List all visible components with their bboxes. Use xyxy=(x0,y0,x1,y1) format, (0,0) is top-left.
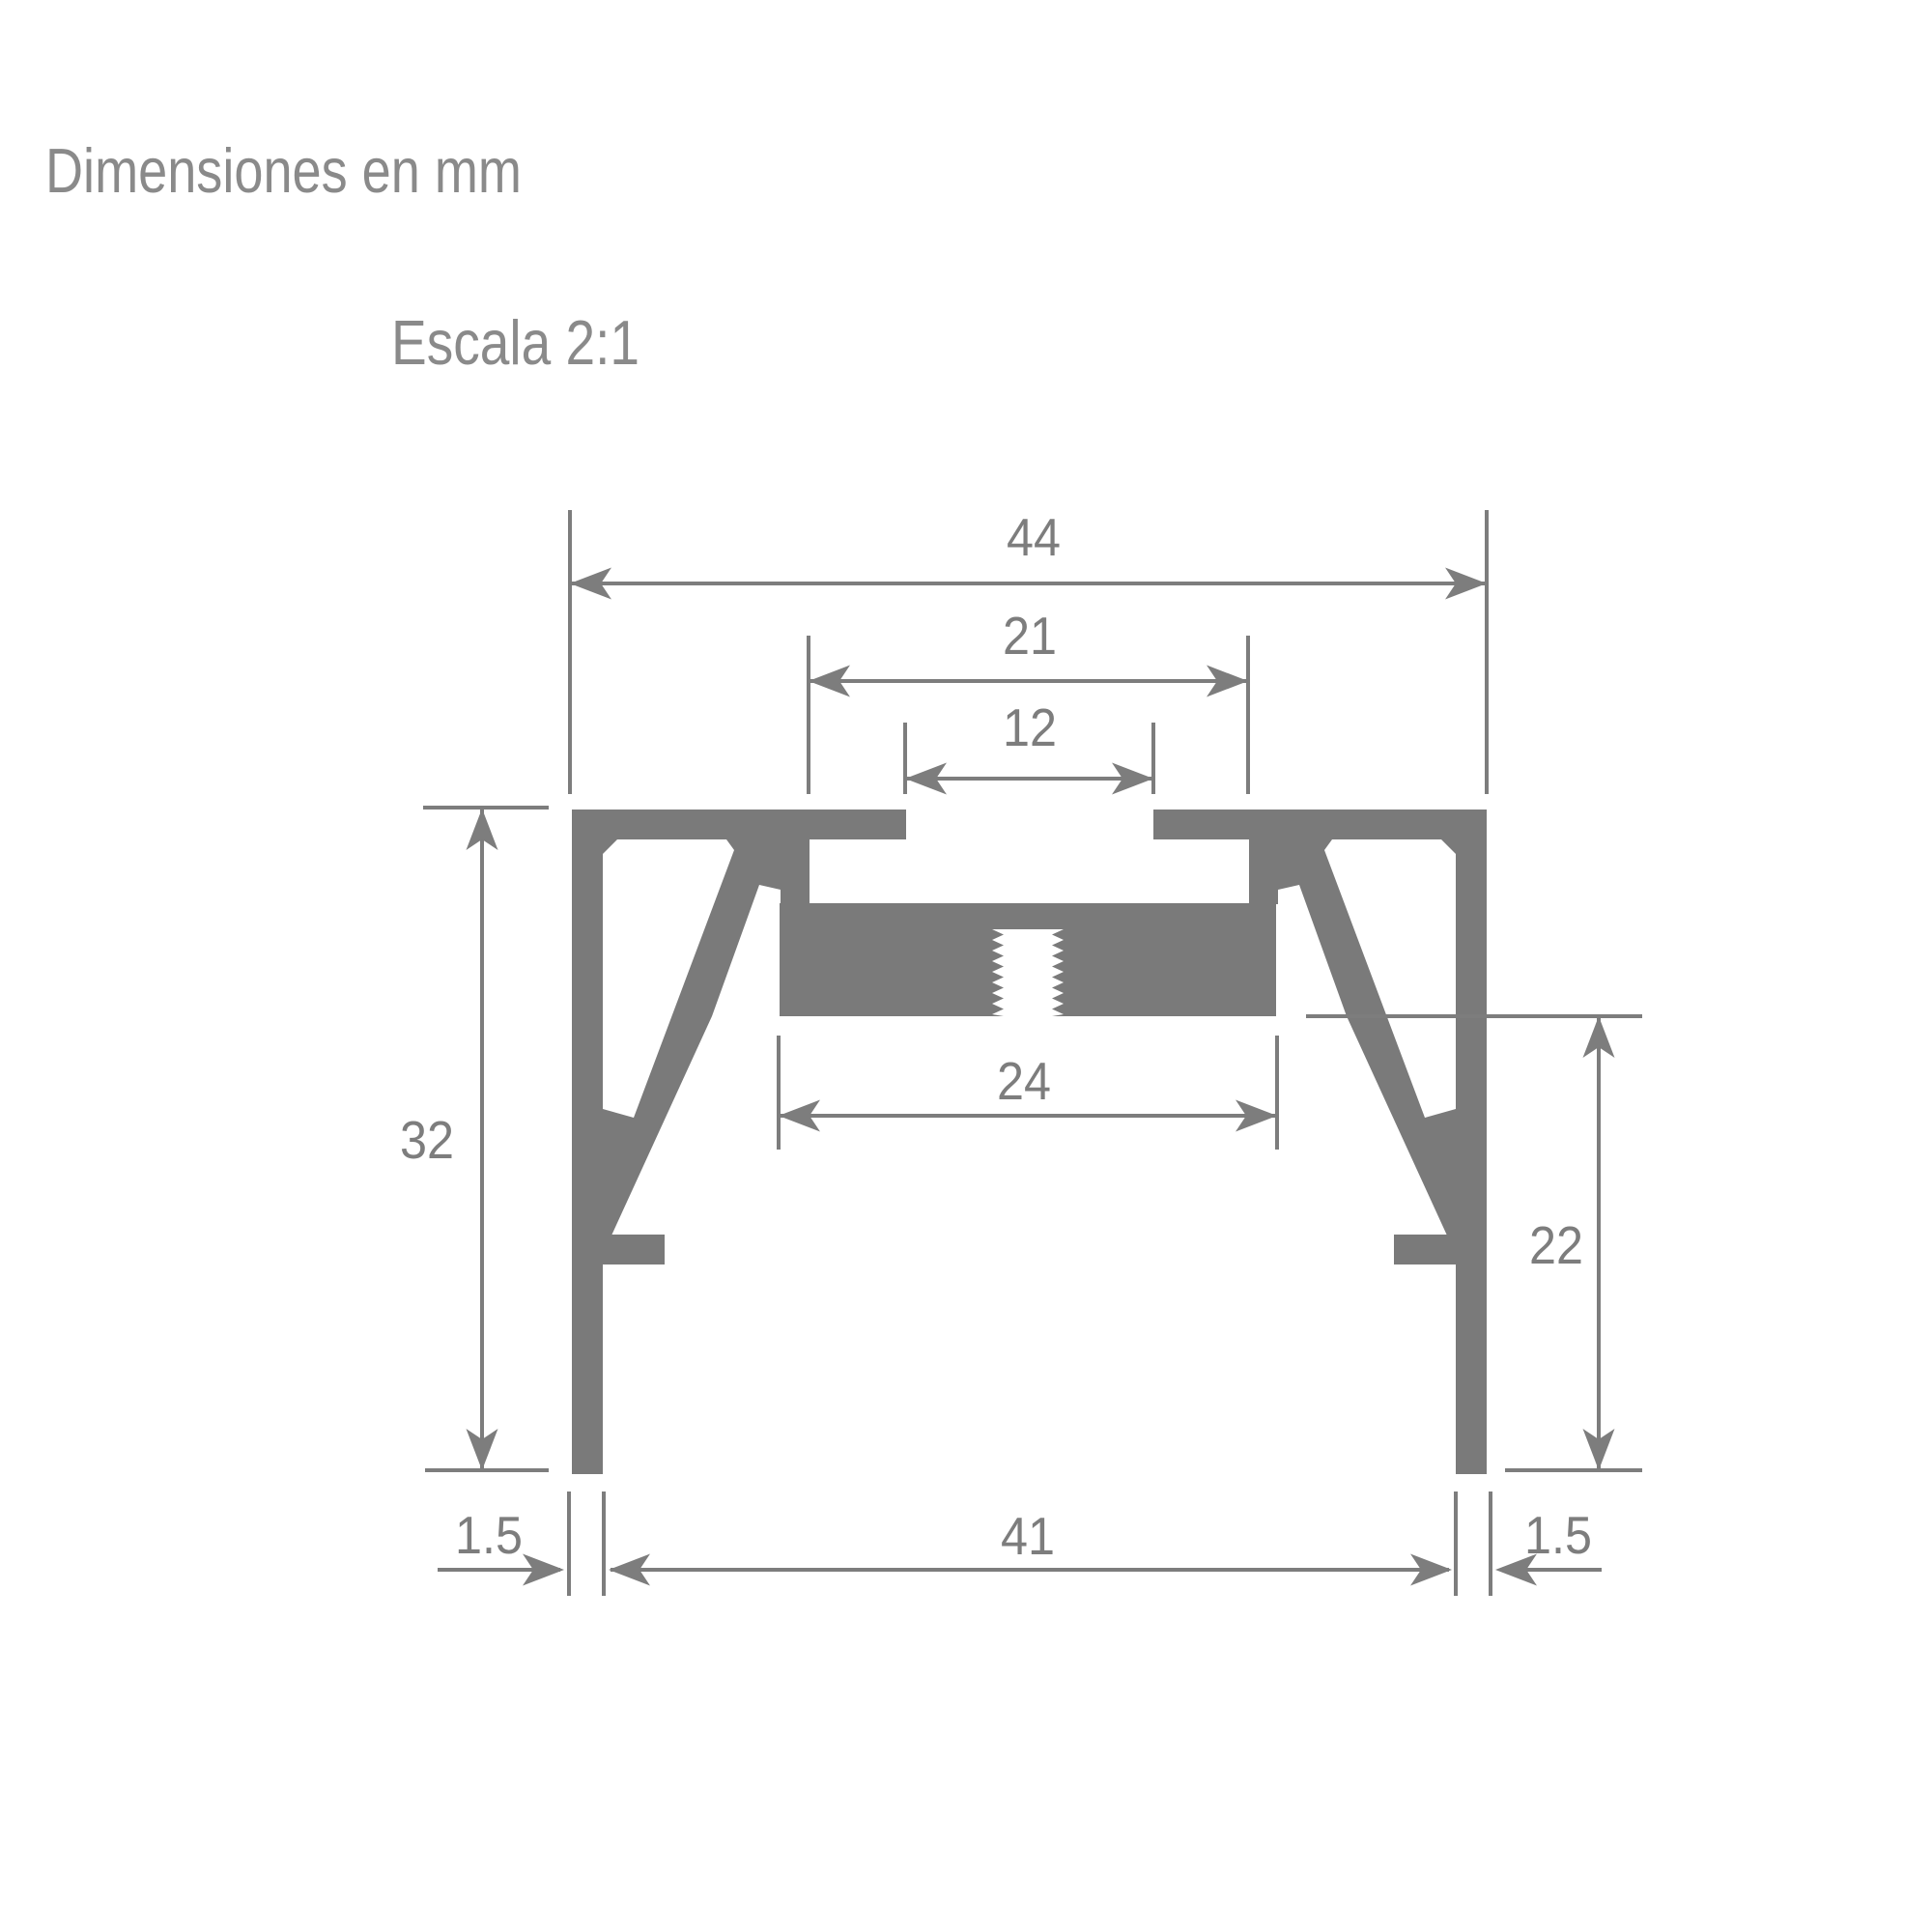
svg-text:32: 32 xyxy=(400,1110,454,1170)
svg-text:24: 24 xyxy=(997,1051,1051,1111)
svg-text:12: 12 xyxy=(1003,697,1057,757)
svg-text:41: 41 xyxy=(1001,1506,1055,1566)
svg-text:22: 22 xyxy=(1529,1215,1583,1275)
svg-text:Escala 2:1: Escala 2:1 xyxy=(391,307,639,378)
svg-text:Dimensiones en mm: Dimensiones en mm xyxy=(45,135,522,206)
svg-text:1.5: 1.5 xyxy=(1524,1505,1592,1565)
svg-text:1.5: 1.5 xyxy=(455,1505,523,1565)
svg-text:21: 21 xyxy=(1003,606,1057,666)
svg-text:44: 44 xyxy=(1007,507,1061,567)
